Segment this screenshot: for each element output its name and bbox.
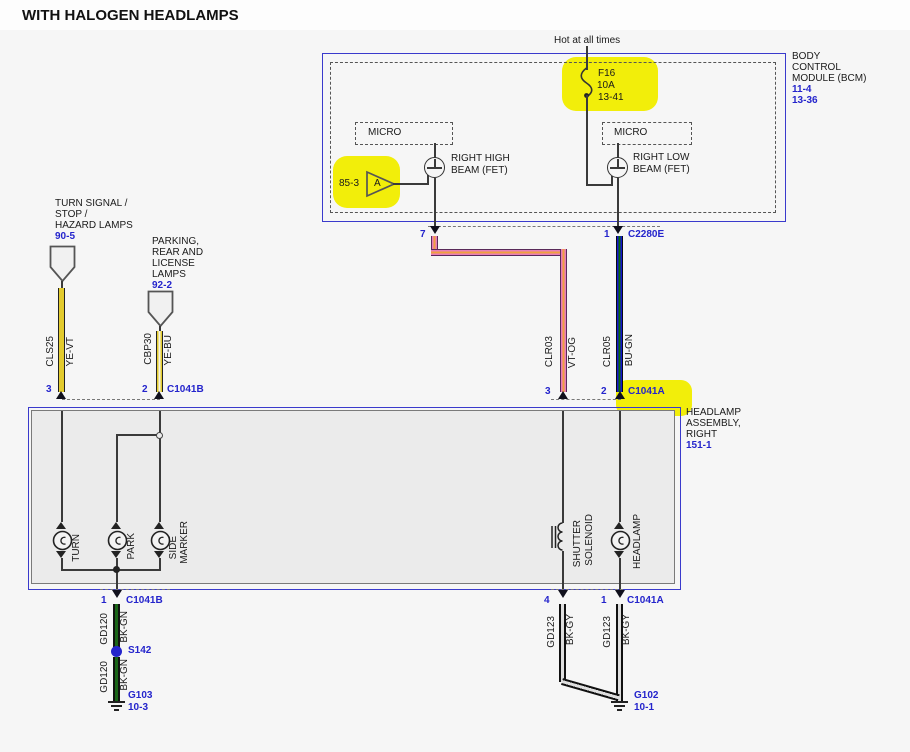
wire-clr03-seg3 bbox=[560, 249, 567, 392]
pin-bottom-shutter-number: 4 bbox=[544, 595, 550, 606]
hot-at-all-times-label: Hot at all times bbox=[554, 35, 620, 46]
turn-ref-line1: TURN SIGNAL / bbox=[55, 198, 127, 209]
turn-branch bbox=[61, 411, 63, 522]
wire-cls25-circuit: CLS25 bbox=[45, 336, 57, 367]
c1041b-bottom-line bbox=[100, 589, 170, 590]
park-feed-top bbox=[159, 411, 161, 434]
splice-s142-label[interactable]: S142 bbox=[128, 645, 151, 656]
fet-low-out bbox=[617, 178, 619, 228]
sidemarker-bulb-chevron-up bbox=[154, 522, 164, 529]
turn-label: TURN bbox=[71, 534, 83, 562]
assembly-page-ref[interactable]: 151-1 bbox=[686, 440, 712, 451]
bus-junction-dot bbox=[113, 566, 120, 573]
fet-low-label1: RIGHT LOW bbox=[633, 152, 689, 163]
bcm-title-line3: MODULE (BCM) bbox=[792, 73, 866, 84]
turn-bulb bbox=[52, 530, 73, 551]
wire-cbp30-circuit: CBP30 bbox=[143, 333, 155, 365]
wire-clr05-circuit: CLR05 bbox=[602, 336, 614, 367]
turn-ref-line3: HAZARD LAMPS bbox=[55, 220, 133, 231]
fet-high-out bbox=[434, 178, 436, 228]
pin3-turn-arrow bbox=[56, 391, 66, 399]
offpage-pentagon-turn bbox=[49, 245, 76, 283]
shutter-solenoid-symbol bbox=[549, 521, 569, 553]
park-branch-h bbox=[116, 434, 160, 436]
park-bulb-chevron-up bbox=[111, 522, 121, 529]
connector-c1041b-bottom[interactable]: C1041B bbox=[126, 595, 163, 606]
branch-junction bbox=[156, 432, 163, 439]
micro-left-to-fet bbox=[434, 143, 436, 158]
turn-ref-line2: STOP / bbox=[55, 209, 87, 220]
park-ref-line4: LAMPS bbox=[152, 269, 186, 280]
ground-g103-symbol-mid bbox=[111, 705, 122, 707]
shutter-label-1: SHUTTER bbox=[572, 520, 584, 567]
wire-gd120-upper-color: BK-GN bbox=[119, 611, 131, 643]
wire-clr05 bbox=[616, 236, 623, 392]
pin-turn-number: 3 bbox=[46, 384, 52, 395]
turn-bulb-chevron-down bbox=[56, 551, 66, 558]
fet-high-label1: RIGHT HIGH bbox=[451, 153, 510, 164]
pin1-arrow bbox=[613, 226, 623, 234]
sidemarker-label-2: MARKER bbox=[179, 521, 191, 564]
input-a-wire bbox=[393, 183, 429, 185]
pin-bottom-headlamp-number: 1 bbox=[601, 595, 607, 606]
headlamp-bulb-chevron-up bbox=[614, 522, 624, 529]
pin-low-number: 1 bbox=[604, 229, 610, 240]
park-bulb-chevron-down bbox=[111, 551, 121, 558]
wire-clr03-circuit: CLR03 bbox=[544, 336, 556, 367]
bcm-title-line1: BODY bbox=[792, 51, 820, 62]
connector-c1041b-top[interactable]: C1041B bbox=[167, 384, 204, 395]
headlamp-feed bbox=[619, 411, 621, 522]
fuse-symbol bbox=[574, 68, 599, 98]
ground-g102-page[interactable]: 10-1 bbox=[634, 702, 654, 713]
fet-low-bar bbox=[610, 167, 625, 169]
pin2-headlamp-arrow bbox=[615, 391, 625, 399]
ground-g102-symbol-mid bbox=[614, 705, 625, 707]
input-a-page: 85-3 bbox=[339, 178, 359, 189]
wire-cbp30 bbox=[156, 331, 163, 392]
lamp-ground-bus bbox=[61, 569, 161, 571]
ground-g103-symbol bbox=[108, 701, 125, 703]
bcm-page-ref-1[interactable]: 11-4 bbox=[792, 84, 811, 95]
fet-high-bar bbox=[427, 167, 442, 169]
park-ref-line3: LICENSE bbox=[152, 258, 195, 269]
sidemarker-branch bbox=[159, 438, 161, 522]
assembly-title-line1: HEADLAMP bbox=[686, 407, 741, 418]
wire-gd123-diagonal bbox=[561, 678, 620, 701]
pin2-park-arrow bbox=[154, 391, 164, 399]
wire-gd120-lower-circuit: GD120 bbox=[99, 661, 111, 693]
ground-g103-name[interactable]: G103 bbox=[128, 690, 152, 701]
power-wire-top bbox=[586, 46, 588, 70]
headlamp-label: HEADLAMP bbox=[632, 514, 644, 569]
park-ref-line1: PARKING, bbox=[152, 236, 199, 247]
pin1-bottom-left-arrow bbox=[112, 590, 122, 598]
pin4-bottom-arrow bbox=[558, 590, 568, 598]
fuse-name: F16 bbox=[598, 68, 615, 79]
headlamp-tail bbox=[619, 558, 621, 590]
micro-right-to-fet bbox=[617, 143, 619, 158]
offpage-pentagon-park bbox=[147, 290, 174, 328]
connector-c1041a-top[interactable]: C1041A bbox=[628, 386, 665, 397]
headlamp-bulb-chevron-down bbox=[614, 551, 624, 558]
wiring-diagram-page: WITH HALOGEN HEADLAMPS Hot at all times … bbox=[0, 0, 910, 752]
connector-c2280e[interactable]: C2280E bbox=[628, 229, 664, 240]
wire-clr03-color: VT-OG bbox=[567, 337, 579, 368]
pin3-shutter-arrow bbox=[558, 391, 568, 399]
wire-gd123-right-color: BK-GY bbox=[621, 614, 633, 645]
park-bulb bbox=[107, 530, 128, 551]
micro-label-right: MICRO bbox=[614, 127, 647, 138]
pin7-arrow bbox=[430, 226, 440, 234]
shutter-feed bbox=[562, 411, 564, 523]
shutter-label-2: SOLENOID bbox=[584, 514, 596, 566]
wire-gd120-upper-circuit: GD120 bbox=[99, 613, 111, 645]
fuse-page: 13-41 bbox=[598, 92, 624, 103]
shutter-tail bbox=[562, 551, 564, 590]
ground-g102-name[interactable]: G102 bbox=[634, 690, 658, 701]
connector-c1041a-bottom[interactable]: C1041A bbox=[627, 595, 664, 606]
c1041a-top-line bbox=[551, 399, 621, 400]
pin-bottom-left-number: 1 bbox=[101, 595, 107, 606]
park-label: PARK bbox=[126, 533, 138, 560]
pin1-bottom-right-arrow bbox=[615, 590, 625, 598]
wire-cbp30-color: YE-BU bbox=[163, 335, 175, 366]
c2280e-connector-line bbox=[428, 226, 660, 227]
park-ref-line2: REAR AND bbox=[152, 247, 203, 258]
splice-s142-dot bbox=[111, 646, 122, 657]
fet-high-label2: BEAM (FET) bbox=[451, 165, 508, 176]
pin-shutter-number: 3 bbox=[545, 386, 551, 397]
micro-label-left: MICRO bbox=[368, 127, 401, 138]
wire-clr05-color: BU-GN bbox=[624, 334, 636, 366]
wire-cls25 bbox=[58, 288, 65, 392]
turn-ref-page[interactable]: 90-5 bbox=[55, 231, 75, 242]
bcm-page-ref-2[interactable]: 13-36 bbox=[792, 95, 818, 106]
assembly-title-line2: ASSEMBLY, bbox=[686, 418, 741, 429]
ground-g102-symbol-low bbox=[617, 709, 622, 711]
wire-gd123-left-color: BK-GY bbox=[565, 614, 577, 645]
fuse-amps: 10A bbox=[597, 80, 615, 91]
ground-g103-page[interactable]: 10-3 bbox=[128, 702, 148, 713]
wire-gd120-lower-color: BK-GN bbox=[119, 659, 131, 691]
fuse-wire-elbow bbox=[586, 184, 613, 186]
pin-headlamp-number: 2 bbox=[601, 386, 607, 397]
park-branch-v bbox=[116, 434, 118, 522]
bcm-title-line2: CONTROL bbox=[792, 62, 841, 73]
wire-clr03-seg2 bbox=[431, 249, 567, 256]
fet-low-feed bbox=[611, 176, 613, 185]
wire-cls25-color: YE-VT bbox=[65, 337, 77, 366]
assembly-title-line3: RIGHT bbox=[686, 429, 717, 440]
fuse-wire-down bbox=[586, 95, 588, 185]
input-a-letter: A bbox=[374, 178, 381, 189]
ground-g102-symbol bbox=[611, 701, 628, 703]
wire-gd123-left-circuit: GD123 bbox=[546, 616, 558, 648]
page-title: WITH HALOGEN HEADLAMPS bbox=[22, 7, 239, 25]
headlamp-bulb bbox=[610, 530, 631, 551]
turn-bulb-chevron-up bbox=[56, 522, 66, 529]
sidemarker-bulb-chevron-down bbox=[154, 551, 164, 558]
ground-g103-symbol-low bbox=[114, 709, 119, 711]
c1041b-top-line bbox=[62, 399, 160, 400]
fet-high-feed bbox=[427, 175, 429, 184]
pin-park-number: 2 bbox=[142, 384, 148, 395]
fet-low-label2: BEAM (FET) bbox=[633, 164, 690, 175]
pin-high-number: 7 bbox=[420, 229, 426, 240]
wire-gd123-right-circuit: GD123 bbox=[602, 616, 614, 648]
